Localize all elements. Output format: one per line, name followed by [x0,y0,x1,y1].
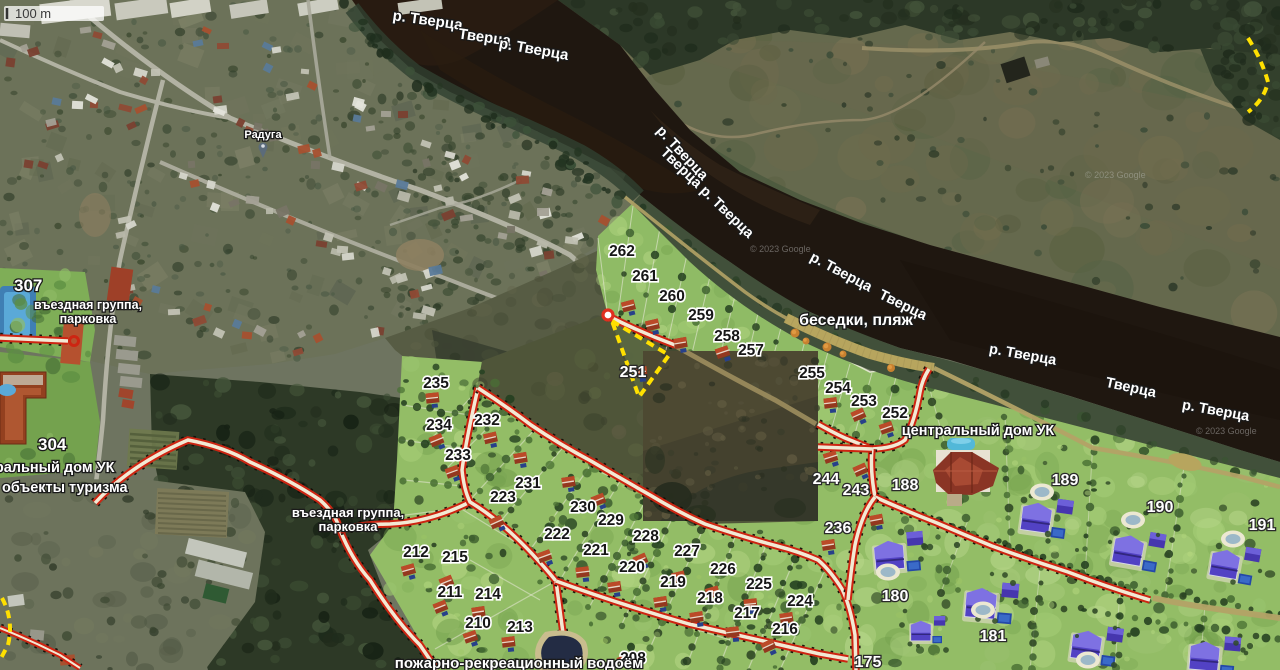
svg-text:221: 221 [583,542,609,559]
svg-text:243: 243 [843,482,870,499]
svg-text:233: 233 [445,447,471,464]
svg-text:220: 220 [619,559,645,576]
svg-text:218: 218 [697,590,723,607]
svg-text:219: 219 [660,574,686,591]
svg-text:центральный дом УК: центральный дом УК [902,423,1055,439]
svg-text:222: 222 [544,526,570,543]
svg-text:пожарно-рекреационный водоём: пожарно-рекреационный водоём [395,655,643,670]
svg-text:236: 236 [825,520,852,537]
svg-text:261: 261 [632,268,658,285]
svg-text:223: 223 [490,489,516,506]
svg-text:215: 215 [442,549,468,566]
svg-text:258: 258 [714,328,740,345]
svg-text:235: 235 [423,375,449,392]
svg-text:254: 254 [825,380,851,397]
svg-text:216: 216 [772,621,798,638]
svg-text:188: 188 [892,477,919,494]
svg-text:211: 211 [437,584,462,601]
svg-text:210: 210 [465,615,491,632]
svg-text:190: 190 [1147,499,1174,516]
svg-text:234: 234 [426,417,452,434]
svg-text:объекты туризма: объекты туризма [2,480,129,496]
svg-text:255: 255 [799,365,825,382]
svg-text:259: 259 [688,307,714,324]
svg-text:252: 252 [882,405,908,422]
svg-text:227: 227 [674,543,700,560]
svg-text:257: 257 [738,342,764,359]
svg-text:Радуга: Радуга [244,129,282,141]
svg-text:224: 224 [787,593,813,610]
svg-text:212: 212 [403,544,429,561]
svg-text:въездная группа,: въездная группа, [34,298,142,312]
svg-text:парковка: парковка [318,519,378,534]
svg-text:180: 180 [882,588,909,605]
svg-text:100 m: 100 m [15,6,51,21]
svg-text:228: 228 [633,528,659,545]
svg-text:225: 225 [746,576,772,593]
svg-text:въездная группа,: въездная группа, [292,505,404,520]
svg-text:214: 214 [475,586,501,603]
svg-text:262: 262 [609,243,635,260]
svg-text:центральный дом УК: центральный дом УК [0,460,115,476]
svg-text:260: 260 [659,288,685,305]
svg-text:251: 251 [620,364,647,381]
svg-text:226: 226 [710,561,736,578]
svg-text:231: 231 [515,475,541,492]
svg-text:175: 175 [855,654,882,670]
svg-text:беседки, пляж: беседки, пляж [799,312,913,329]
svg-text:© 2023 Google: © 2023 Google [1085,170,1146,180]
svg-text:229: 229 [598,512,624,529]
svg-text:232: 232 [474,412,500,429]
svg-text:217: 217 [734,605,760,622]
svg-text:230: 230 [570,499,596,516]
svg-text:244: 244 [813,471,840,488]
svg-text:191: 191 [1249,517,1276,534]
svg-text:213: 213 [507,619,533,636]
svg-text:181: 181 [980,628,1007,645]
svg-text:307: 307 [14,276,42,295]
svg-text:парковка: парковка [60,312,118,326]
svg-text:© 2023 Google: © 2023 Google [750,244,811,254]
svg-text:© 2023 Google: © 2023 Google [1196,426,1257,436]
svg-text:189: 189 [1052,472,1079,489]
svg-text:253: 253 [851,393,877,410]
svg-text:304: 304 [38,435,67,454]
